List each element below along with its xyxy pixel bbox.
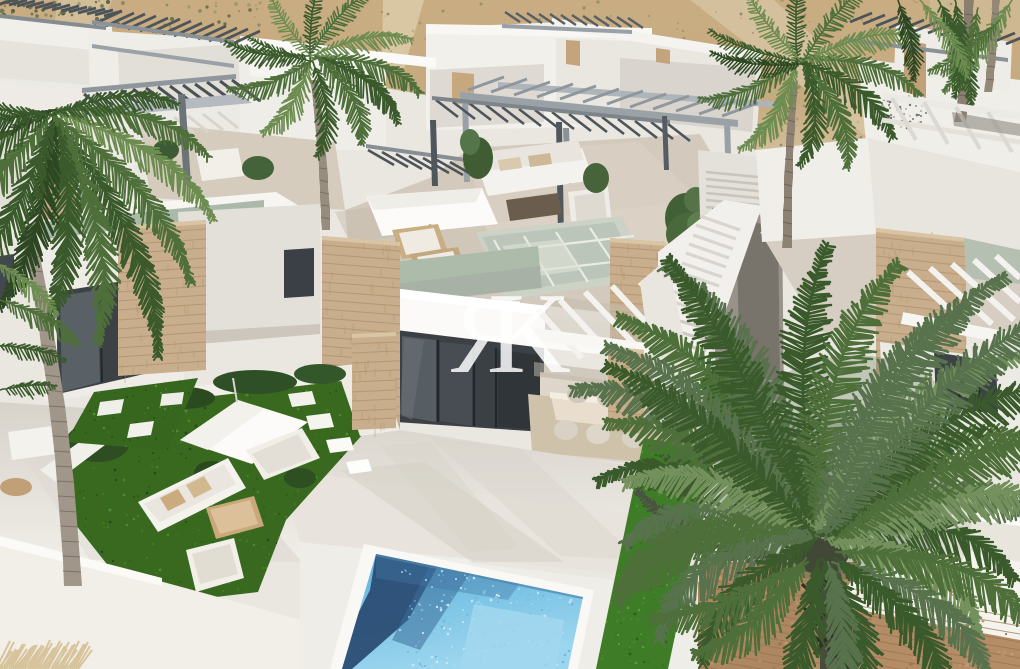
svg-text:K: K — [488, 270, 571, 397]
